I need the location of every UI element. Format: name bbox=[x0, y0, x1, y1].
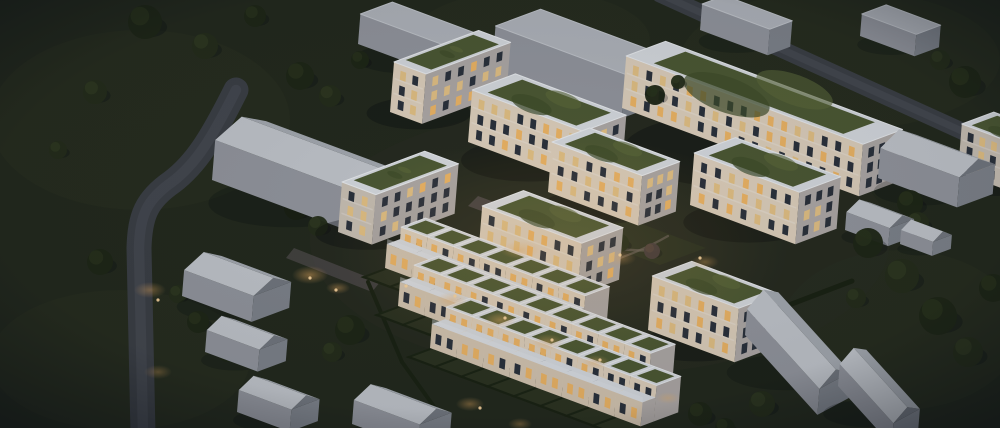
scene-canvas bbox=[0, 0, 1000, 428]
vignette bbox=[0, 0, 1000, 428]
aerial-night-render bbox=[0, 0, 1000, 428]
